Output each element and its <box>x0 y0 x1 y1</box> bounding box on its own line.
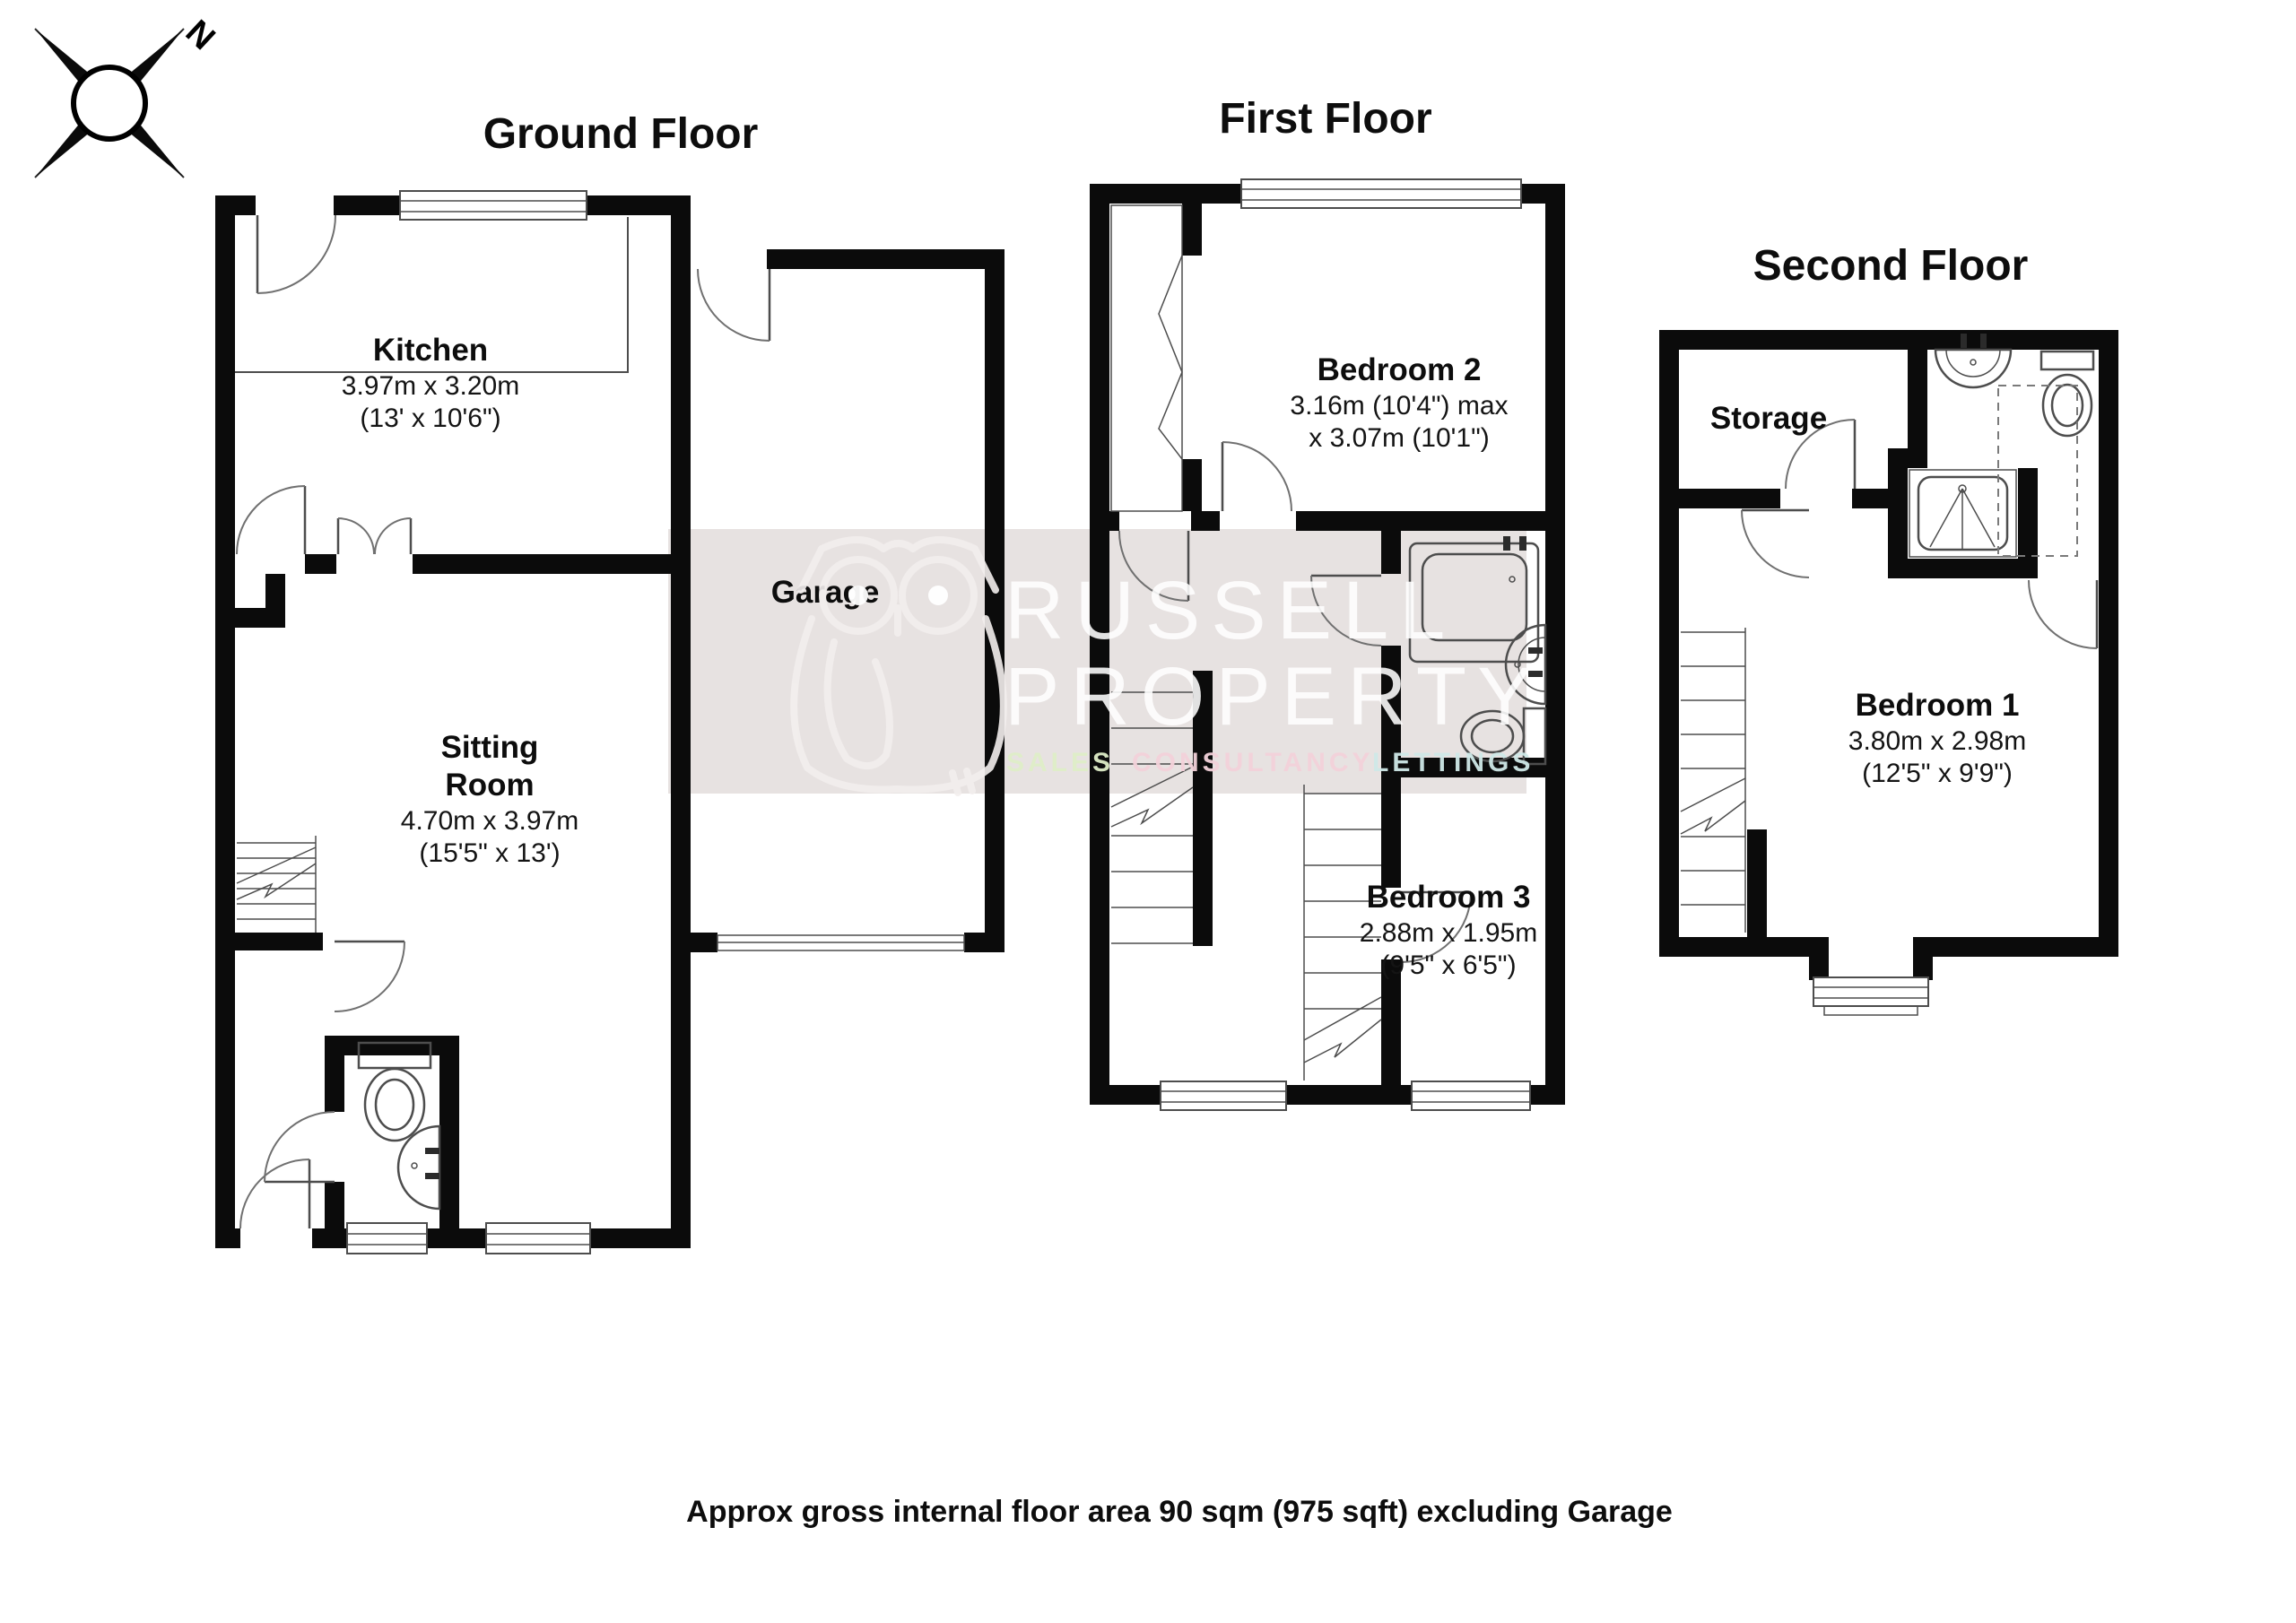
room-name: Bedroom 2 <box>1318 352 1482 387</box>
wall <box>585 1228 691 1248</box>
room-dims-imperial: (13' x 10'6") <box>360 404 500 433</box>
wall <box>1182 204 1202 256</box>
room-name: Bedroom 1 <box>1856 688 2020 723</box>
wall <box>1090 511 1119 531</box>
bedroom1-label: Bedroom 1 3.80m x 2.98m (12'5" x 9'9") <box>1848 688 2026 788</box>
wall <box>1913 937 1933 980</box>
bedroom3-label: Bedroom 3 2.88m x 1.95m (9'5" x 6'5") <box>1360 880 1537 980</box>
wall <box>1659 489 1780 508</box>
watermark-tagline-consultancy: CONSULTANCY <box>1132 748 1374 777</box>
kitchen-window <box>400 191 587 220</box>
wall <box>1809 937 1829 980</box>
wall <box>265 574 285 628</box>
owl-eye-icon <box>928 586 948 605</box>
room-name: Sitting <box>441 730 539 765</box>
wall <box>334 195 405 215</box>
kitchen-sitting-door <box>237 486 305 554</box>
wall <box>413 554 671 574</box>
bedroom1-door <box>2029 580 2097 648</box>
room-dims-imperial: x 3.07m (10'1") <box>1309 423 1489 453</box>
room-dims-metric: 4.70m x 3.97m <box>401 806 578 836</box>
shower-icon <box>1909 470 2016 557</box>
second-staircase <box>1681 628 1745 933</box>
french-doors <box>338 518 411 554</box>
second-floor-plan: Second Floor <box>1659 242 2118 1015</box>
wall <box>1296 511 1565 531</box>
wall <box>325 1055 344 1112</box>
room-dims-metric: 3.16m (10'4") max <box>1290 391 1508 421</box>
wall <box>1659 330 1679 957</box>
compass-north-label: N <box>178 13 222 57</box>
kitchen-label: Kitchen 3.97m x 3.20m (13' x 10'6") <box>342 333 519 433</box>
wall <box>1659 937 1809 957</box>
wall <box>1182 459 1202 511</box>
first-floor-title: First Floor <box>1219 95 1431 143</box>
wall <box>1090 1085 1166 1105</box>
wall <box>305 554 336 574</box>
toilet-icon <box>359 1043 430 1141</box>
sitting-room-label: Sitting Room 4.70m x 3.97m (15'5" x 13') <box>401 730 578 868</box>
wall <box>1191 511 1220 531</box>
toilet-icon <box>2041 352 2093 436</box>
wall <box>422 1228 491 1248</box>
hall-sitting-door <box>335 942 404 1011</box>
wall <box>215 1228 240 1248</box>
floorplan-canvas: N Ground Floor <box>0 0 2296 1623</box>
bedroom1-window <box>1813 977 1928 1015</box>
wall <box>2099 330 2118 957</box>
room-dims-metric: 3.80m x 2.98m <box>1848 726 2026 756</box>
watermark-brand-line2: PROPERTY <box>1004 651 1543 742</box>
front-door <box>240 1159 309 1228</box>
bedroom3-window <box>1412 1081 1530 1110</box>
wardrobe-bifold <box>1111 205 1182 511</box>
wall <box>1747 829 1767 957</box>
landing-window <box>1161 1081 1286 1110</box>
room-dims-imperial: (15'5" x 13') <box>419 838 560 868</box>
room-dims-metric: 2.88m x 1.95m <box>1360 918 1537 948</box>
wall <box>235 933 323 950</box>
wall <box>1090 184 1247 204</box>
wall <box>671 195 691 1248</box>
watermark-tagline-sales: SALES <box>1006 748 1114 777</box>
ground-staircase <box>237 836 316 933</box>
room-name: Kitchen <box>373 333 488 368</box>
wall <box>964 933 985 952</box>
room-dims-metric: 3.97m x 3.20m <box>342 371 519 401</box>
wc-window <box>347 1223 427 1254</box>
wall <box>1281 1085 1417 1105</box>
sitting-room-window <box>486 1223 590 1254</box>
room-dims-imperial: (9'5" x 6'5") <box>1380 950 1516 980</box>
wall <box>767 249 985 269</box>
owl-eye-icon <box>848 586 868 605</box>
wall <box>215 195 256 215</box>
wall <box>439 1055 459 1228</box>
wall <box>215 195 235 1248</box>
garage-side-door <box>698 269 770 341</box>
watermark-tagline-lettings: LETTINGS <box>1372 748 1534 777</box>
bedroom2-door <box>1222 442 1291 511</box>
wall <box>691 933 717 952</box>
bedroom2-window <box>1241 179 1521 208</box>
room-name: Room <box>445 768 534 803</box>
second-floor-title: Second Floor <box>1753 242 2029 290</box>
wall <box>215 608 265 628</box>
wall <box>325 1036 459 1055</box>
wall <box>2018 468 2038 578</box>
ground-floor-title: Ground Floor <box>483 110 759 158</box>
bedroom2-label: Bedroom 2 3.16m (10'4") max x 3.07m (10'… <box>1290 352 1508 453</box>
wall <box>1545 184 1565 1105</box>
compass-hub <box>74 67 145 139</box>
garage-door <box>717 935 964 950</box>
wall <box>1888 559 2018 578</box>
wall <box>985 249 1004 952</box>
wc-door <box>265 1112 335 1182</box>
storage-label: Storage <box>1710 401 1827 436</box>
wall <box>1933 937 2118 957</box>
wall <box>1659 330 2118 350</box>
wall <box>325 1182 344 1228</box>
room-name: Bedroom 3 <box>1367 880 1531 915</box>
floor-area-caption: Approx gross internal floor area 90 sqm … <box>686 1495 1673 1529</box>
landing-bedroom1-door <box>1742 510 1809 577</box>
compass-rose-icon: N <box>35 13 222 178</box>
kitchen-top-door <box>257 215 335 293</box>
room-dims-imperial: (12'5" x 9'9") <box>1862 759 2013 788</box>
watermark-brand-line1: RUSSELL <box>1004 565 1456 656</box>
